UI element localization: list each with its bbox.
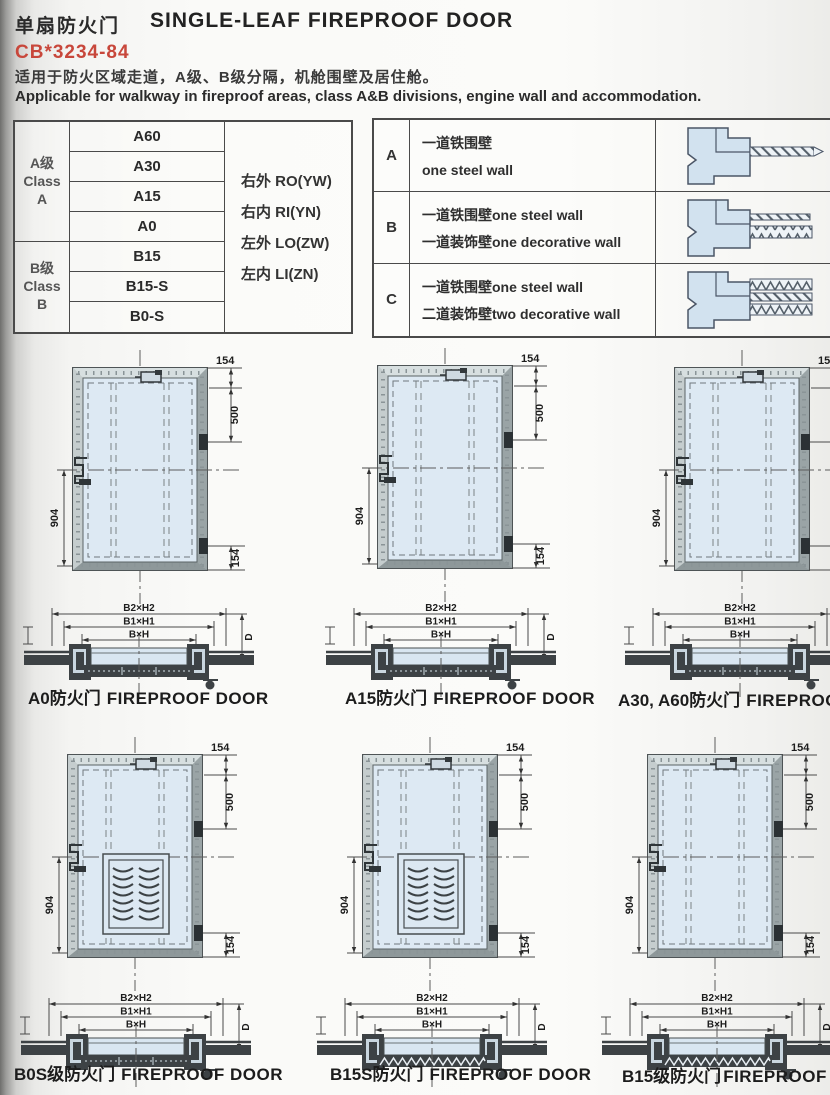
section-label-inner: B×H (431, 630, 451, 641)
section-label-mid: B1×H1 (416, 1007, 448, 1018)
door-figure-a0: 154 500 154 904 (45, 348, 245, 611)
caption-en: FIREPROOF DOOR (723, 1067, 830, 1086)
wall-row-line2: 二道装饰壁two decorative wall (422, 301, 655, 328)
wall-row-text: 一道铁围壁 one steel wall (410, 120, 656, 192)
steel-wall-strip (750, 214, 810, 220)
door-front-view: 154 500 154 904 (620, 735, 820, 993)
orientation-right-in: 右内 RI(YN) (241, 197, 351, 228)
wall-row-text: 一道铁围壁one steel wall 一道装饰壁one decorative … (410, 192, 656, 264)
wall-row-key: A (374, 120, 410, 192)
description-cn: 适用于防火区域走道，A级、B级分隔，机舱围壁及居住舱。 (15, 66, 439, 87)
class-b-label-en: Class (15, 277, 69, 295)
class-a-label-cn: A级 (15, 154, 69, 172)
dim-label-left: 904 (49, 508, 61, 527)
door-hinge-bottom (801, 538, 810, 554)
dim-label-bottom: 154 (225, 935, 237, 954)
dim-label-upper: 500 (229, 406, 241, 424)
door-figure-a30-a60: 154 500 154 904 (647, 348, 830, 611)
door-hinge-bottom (194, 925, 203, 941)
wall-stub-left (625, 655, 670, 665)
dim-label-left: 904 (44, 895, 56, 914)
wall-stub-right (787, 1045, 830, 1055)
dimension-lines-right (207, 368, 245, 570)
door-front-view: 154 500 154 904 (45, 348, 245, 606)
door-hinge-top (801, 434, 810, 450)
caption-en: FIREPROOF DOOR (121, 1065, 283, 1084)
door-hinge-top (489, 821, 498, 837)
caption-en: FIREPROOF DOOR (746, 691, 830, 710)
door-figure-b0s: 154 500 154 904 (40, 735, 240, 998)
model-cell: A15 (70, 182, 225, 212)
door-front-view: 154 500 154 904 (350, 346, 550, 604)
figure-caption: A0防火门FIREPROOF DOOR (28, 684, 269, 709)
decorative-wall-strip (750, 304, 812, 315)
figure-caption: B0S级防火门FIREPROOF DOOR (14, 1060, 283, 1085)
caption-cn: A0防火门 (28, 689, 101, 708)
model-cell: A60 (70, 122, 225, 152)
orientation-cell: 右外 RO(YW) 右内 RI(YN) 左外 LO(ZW) 左内 LI(ZN) (225, 122, 351, 332)
section-label-mid: B1×H1 (123, 617, 155, 628)
section-label-depth: D (822, 1023, 830, 1030)
model-cell: A0 (70, 212, 225, 242)
figure-caption: B15S防火门FIREPROOF DOOR (330, 1060, 591, 1085)
dim-label-top: 154 (818, 355, 830, 367)
wall-row-line1: 一道铁围壁one steel wall (422, 202, 655, 229)
wall-config-c-diagram (658, 268, 828, 332)
frame-profile (688, 272, 750, 328)
door-hinge-top (774, 821, 783, 837)
door-figure-b15: 154 500 154 904 (620, 735, 820, 998)
dim-label-left: 904 (339, 895, 351, 914)
door-hinge-top (199, 434, 208, 450)
dimension-lines-right (497, 755, 535, 957)
class-table: A级 Class A B级 Class B A60 A30 A15 A0 B15… (13, 120, 353, 334)
door-front-view: 154 500 154 904 (40, 735, 240, 993)
class-a-letter: A (15, 190, 69, 208)
frame-profile (688, 200, 750, 256)
wall-row-line2: 一道装饰壁one decorative wall (422, 229, 655, 256)
dim-label-upper: 500 (534, 404, 546, 422)
frame-profile (688, 128, 750, 184)
class-a-group-cell: A级 Class A (15, 122, 70, 242)
wall-config-table: A 一道铁围壁 one steel wall B 一道铁围壁one steel … (372, 118, 830, 338)
section-label-depth: D (546, 633, 557, 640)
class-b-label-cn: B级 (15, 259, 69, 277)
class-b-letter: B (15, 295, 69, 313)
page-title-en: SINGLE-LEAF FIREPROOF DOOR (150, 9, 513, 33)
wall-stub-left (602, 1045, 647, 1055)
wall-config-b-diagram (658, 196, 828, 260)
model-cell: B15-S (70, 272, 225, 302)
steel-wall-strip (750, 293, 812, 301)
scanned-catalog-page: { "header": { "title_cn": "单扇防火门", "titl… (0, 0, 830, 1094)
section-label-depth: D (241, 1023, 252, 1030)
section-label-inner: B×H (129, 630, 149, 641)
wall-stub-right (810, 655, 830, 665)
caption-cn: A30, A60防火门 (618, 691, 740, 710)
section-label-outer: B2×H2 (724, 603, 756, 614)
decorative-wall-strip (750, 279, 812, 290)
dim-label-top: 154 (211, 742, 230, 754)
section-label-inner: B×H (126, 1020, 146, 1031)
wall-row-diagram-cell (656, 264, 830, 336)
door-hinge-bottom (489, 925, 498, 941)
model-cell: A30 (70, 152, 225, 182)
section-label-outer: B2×H2 (416, 993, 448, 1004)
door-hinge-top (504, 432, 513, 448)
figure-caption: A15防火门FIREPROOF DOOR (345, 684, 595, 709)
dim-label-upper: 500 (804, 793, 816, 811)
door-front-view: 154 500 154 904 (647, 348, 830, 606)
section-label-outer: B2×H2 (123, 603, 155, 614)
caption-en: FIREPROOF DOOR (433, 689, 595, 708)
dimension-lines-right (809, 368, 830, 570)
page-title-cn: 单扇防火门 (15, 11, 120, 38)
section-label-depth: D (537, 1023, 548, 1030)
wall-stub-left (326, 655, 371, 665)
section-label-outer: B2×H2 (120, 993, 152, 1004)
wall-row-line2: one steel wall (422, 157, 655, 184)
wall-row-key: B (374, 192, 410, 264)
steel-wall-strip (750, 147, 814, 156)
section-label-inner: B×H (707, 1020, 727, 1031)
figure-caption: B15级防火门FIREPROOF DOOR (622, 1062, 830, 1087)
door-figure-b15s: 154 500 154 904 (335, 735, 535, 998)
door-louver (103, 854, 169, 934)
caption-cn: B15S防火门 (330, 1065, 424, 1084)
dimension-lines-right (782, 755, 820, 957)
wall-stub-right (209, 655, 254, 665)
section-label-mid: B1×H1 (425, 617, 457, 628)
model-cell: B15 (70, 242, 225, 272)
dim-label-bottom: 154 (520, 935, 532, 954)
dim-label-upper: 500 (519, 793, 531, 811)
dim-label-left: 904 (624, 895, 636, 914)
orientation-left-in: 左内 LI(ZN) (241, 259, 351, 290)
description-en: Applicable for walkway in fireproof area… (15, 88, 701, 105)
caption-en: FIREPROOF DOOR (430, 1065, 592, 1084)
caption-cn: A15防火门 (345, 689, 427, 708)
standard-number: CB*3234-84 (15, 42, 130, 64)
door-hinge-top (194, 821, 203, 837)
section-label-depth: D (244, 633, 255, 640)
dimension-lines-right (512, 366, 550, 568)
door-hinge-bottom (504, 536, 513, 552)
orientation-right-out: 右外 RO(YW) (241, 166, 351, 197)
wall-row-diagram-cell (656, 192, 830, 264)
section-label-mid: B1×H1 (120, 1007, 152, 1018)
dim-label-top: 154 (506, 742, 525, 754)
caption-cn: B0S级防火门 (14, 1065, 115, 1084)
dim-label-bottom: 154 (230, 548, 242, 567)
dim-label-bottom: 154 (805, 935, 817, 954)
dimension-lines-right (202, 755, 240, 957)
wall-stub-left (24, 655, 69, 665)
wall-row-diagram-cell (656, 120, 830, 192)
door-figure-a15: 154 500 154 904 (350, 346, 550, 609)
figure-caption: A30, A60防火门FIREPROOF DOOR (618, 686, 830, 711)
caption-cn: B15级防火门 (622, 1067, 721, 1086)
dim-label-top: 154 (791, 742, 810, 754)
dim-label-top: 154 (521, 353, 540, 365)
wall-config-a-diagram (658, 124, 828, 188)
dim-label-upper: 500 (224, 793, 236, 811)
dim-label-left: 904 (651, 508, 663, 527)
door-hinge-bottom (774, 925, 783, 941)
wall-stub-left (21, 1045, 66, 1055)
class-a-label-en: Class (15, 172, 69, 190)
dim-label-left: 904 (354, 506, 366, 525)
section-label-mid: B1×H1 (701, 1007, 733, 1018)
dim-label-bottom: 154 (535, 546, 547, 565)
section-label-outer: B2×H2 (425, 603, 457, 614)
section-label-inner: B×H (730, 630, 750, 641)
decorative-wall-strip (750, 226, 812, 238)
section-label-inner: B×H (422, 1020, 442, 1031)
wall-stub-right (206, 1045, 251, 1055)
wall-row-key: C (374, 264, 410, 336)
orientation-left-out: 左外 LO(ZW) (241, 228, 351, 259)
wall-row-line1: 一道铁围壁one steel wall (422, 274, 655, 301)
model-cell: B0-S (70, 302, 225, 332)
class-b-group-cell: B级 Class B (15, 242, 70, 332)
door-front-view: 154 500 154 904 (335, 735, 535, 993)
door-louver (398, 854, 464, 934)
wall-stub-right (502, 1045, 547, 1055)
section-label-outer: B2×H2 (701, 993, 733, 1004)
wall-stub-right (511, 655, 556, 665)
section-label-mid: B1×H1 (724, 617, 756, 628)
door-section-view: B2×H2 B1×H1 B×H D (615, 600, 830, 700)
wall-row-line1: 一道铁围壁 (422, 130, 655, 157)
dim-label-top: 154 (216, 355, 235, 367)
caption-en: FIREPROOF DOOR (107, 689, 269, 708)
wall-stub-left (317, 1045, 362, 1055)
door-hinge-bottom (199, 538, 208, 554)
wall-row-text: 一道铁围壁one steel wall 二道装饰壁two decorative … (410, 264, 656, 336)
